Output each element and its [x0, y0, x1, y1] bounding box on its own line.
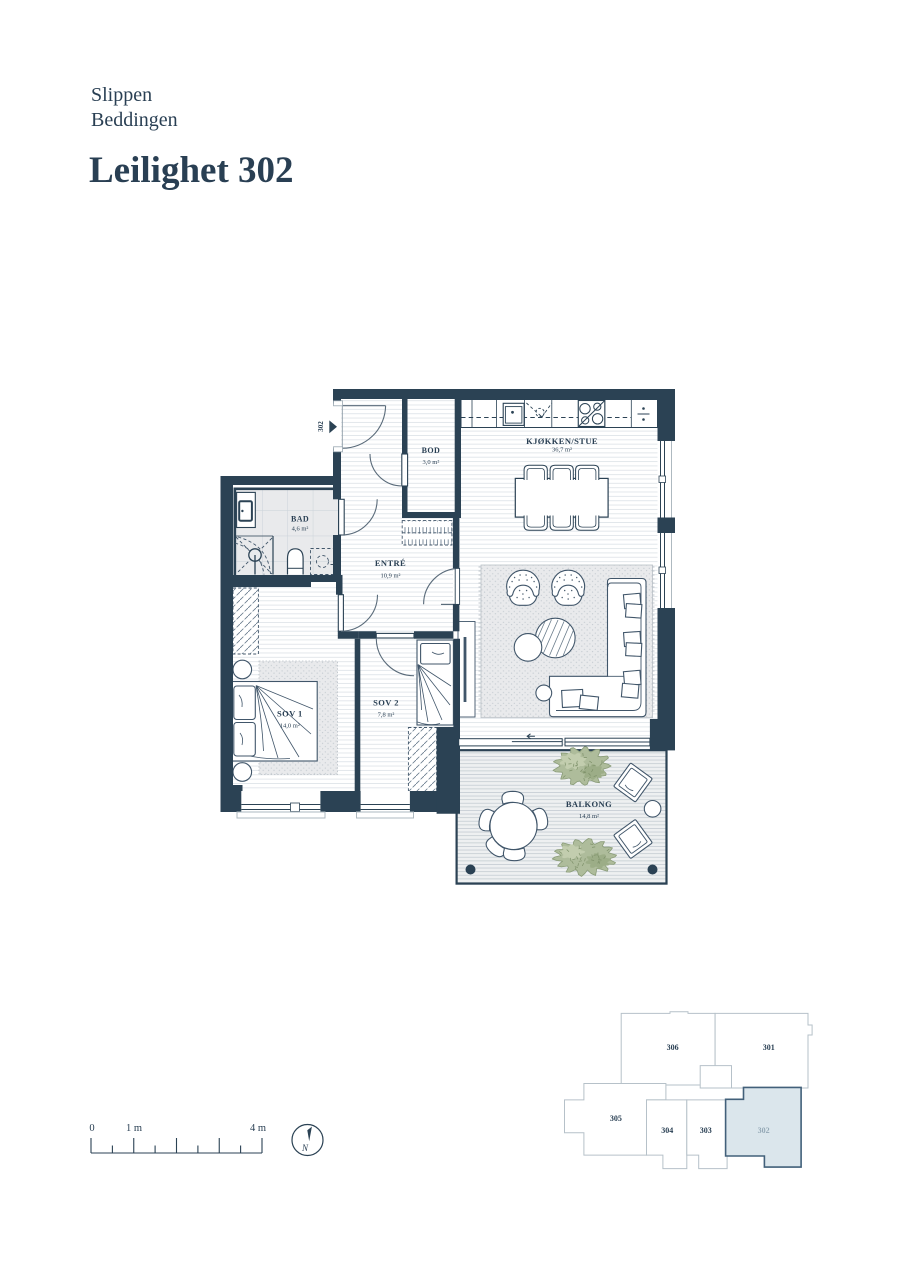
- svg-text:ENTRÉ: ENTRÉ: [375, 558, 406, 568]
- svg-text:14,0 m²: 14,0 m²: [280, 723, 300, 730]
- svg-text:302: 302: [758, 1126, 770, 1135]
- svg-text:N: N: [301, 1143, 309, 1153]
- svg-text:4 m: 4 m: [250, 1123, 266, 1134]
- svg-text:306: 306: [667, 1043, 679, 1052]
- svg-text:SOV 1: SOV 1: [277, 709, 303, 719]
- svg-text:Beddingen: Beddingen: [91, 109, 178, 131]
- svg-text:14,8 m²: 14,8 m²: [579, 813, 599, 820]
- svg-text:10,9 m²: 10,9 m²: [380, 573, 400, 580]
- svg-text:BAD: BAD: [291, 515, 309, 524]
- svg-text:BOD: BOD: [422, 446, 441, 455]
- svg-text:7,8 m²: 7,8 m²: [378, 712, 395, 719]
- svg-text:SOV 2: SOV 2: [373, 698, 399, 708]
- svg-text:Slippen: Slippen: [91, 84, 152, 106]
- svg-text:1 m: 1 m: [126, 1123, 142, 1134]
- svg-text:303: 303: [700, 1126, 712, 1135]
- svg-text:304: 304: [661, 1126, 673, 1135]
- svg-text:3,0 m²: 3,0 m²: [423, 459, 440, 466]
- svg-text:4,6 m²: 4,6 m²: [292, 526, 309, 533]
- svg-text:36,7 m²: 36,7 m²: [552, 447, 572, 454]
- svg-text:KJØKKEN/STUE: KJØKKEN/STUE: [526, 436, 598, 446]
- svg-text:0: 0: [89, 1123, 94, 1134]
- svg-text:302: 302: [317, 421, 325, 432]
- svg-text:301: 301: [763, 1043, 775, 1052]
- svg-text:305: 305: [610, 1114, 622, 1123]
- svg-text:Leilighet 302: Leilighet 302: [89, 150, 294, 191]
- svg-text:BALKONG: BALKONG: [566, 799, 612, 809]
